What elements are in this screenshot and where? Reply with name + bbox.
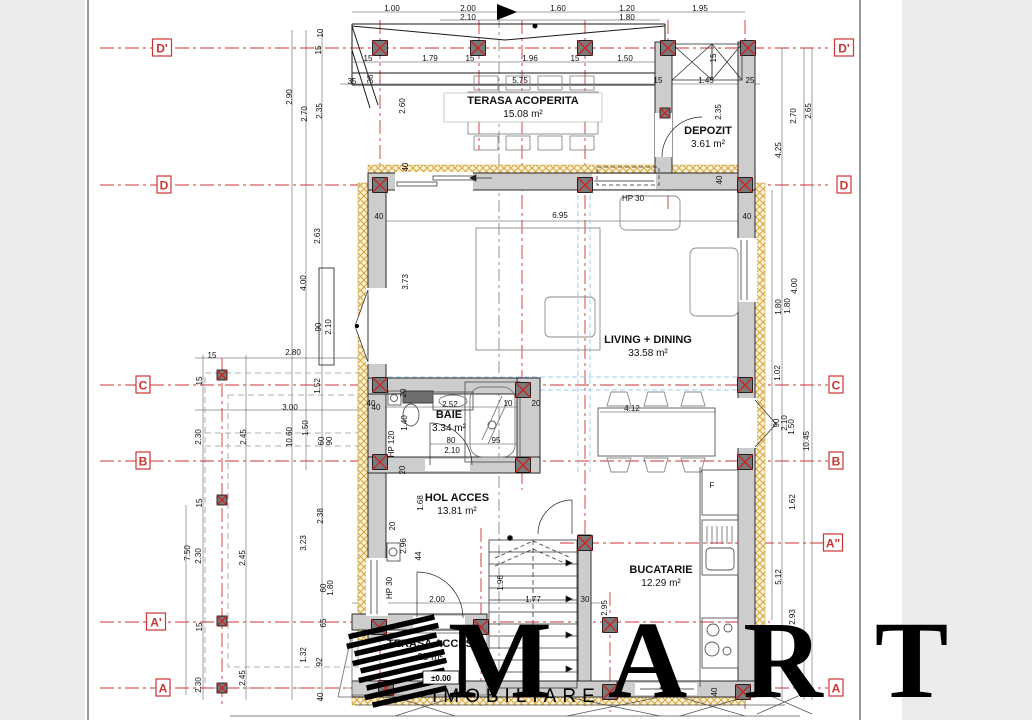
grid-label-B: B xyxy=(829,452,843,469)
dimension-label: 2.35 xyxy=(714,104,723,120)
dimension-label: 2.10 xyxy=(324,319,333,335)
dimension-label: 1.20 xyxy=(619,4,635,13)
column-marker xyxy=(578,536,593,551)
column-marker xyxy=(660,108,670,118)
dimension-label: 1.96 xyxy=(496,575,505,591)
grid-letter: D' xyxy=(838,42,850,56)
dimension-label: 2.52 xyxy=(442,400,458,409)
floor-plan-drawing: 1.002.002.101.601.201.801.95151.79151.96… xyxy=(0,0,1032,720)
dimension-label: 2.60 xyxy=(398,98,407,114)
room-name: DEPOZIT xyxy=(684,125,732,137)
dimension-label: 40 xyxy=(367,399,376,408)
dimension-label: 2.10 xyxy=(444,446,460,455)
dimension-label: F xyxy=(710,481,715,490)
dimension-label: 2.63 xyxy=(313,228,322,244)
dimension-label: 4.00 xyxy=(790,278,799,294)
dimension-label: 1.80 xyxy=(326,580,335,596)
room-area: 3.34 m² xyxy=(432,423,467,434)
level-marker-value: ±0.00 xyxy=(431,674,452,683)
column-marker xyxy=(516,383,531,398)
dimension-label: 2.10 xyxy=(460,13,476,22)
dimension-label: HP 120 xyxy=(387,430,396,457)
dimension-label: 40 xyxy=(375,212,384,221)
dimension-label: HP 30 xyxy=(385,576,394,599)
dimension-label: 20 xyxy=(532,399,541,408)
dimension-label: 15 xyxy=(654,76,663,85)
dimension-label: 15 xyxy=(208,351,217,360)
column-marker xyxy=(217,683,227,693)
watermark-subtitle: IMOBILIARE xyxy=(432,686,601,707)
grid-label-C: C xyxy=(829,376,843,393)
dimension-label: 2.30 xyxy=(194,429,203,445)
dimension-label: 2.70 xyxy=(300,106,309,122)
dimension-label: 1.00 xyxy=(384,4,400,13)
column-marker xyxy=(516,458,531,473)
level-marker: ±0.00 xyxy=(423,671,459,684)
dimension-label: 92 xyxy=(315,657,324,666)
dimension-label: 5.12 xyxy=(774,569,783,585)
grid-label-D': D' xyxy=(153,39,172,56)
room-name: TERASA ACOPERITA xyxy=(467,95,578,107)
dimension-label: 10.45 xyxy=(802,430,811,451)
column-marker xyxy=(661,41,676,56)
column-marker xyxy=(738,378,753,393)
dimension-label: 10.60 xyxy=(285,426,294,447)
dimension-label: 44 xyxy=(414,551,423,560)
dimension-label: 40 xyxy=(743,212,752,221)
floor-plan-page: 1.002.002.101.601.201.801.95151.79151.96… xyxy=(0,0,1032,720)
dimension-label: 1.52 xyxy=(313,378,322,394)
dimension-label: 1.50 xyxy=(787,419,796,435)
dimension-label: 40 xyxy=(715,175,724,184)
dimension-label: 65 xyxy=(319,618,328,627)
column-marker xyxy=(373,41,388,56)
dimension-label: 3.23 xyxy=(299,535,308,551)
grid-letter: C xyxy=(832,379,841,393)
column-marker xyxy=(217,616,227,626)
dimension-label: 3.00 xyxy=(282,403,298,412)
grid-label-C: C xyxy=(136,376,150,393)
dimension-label: 35 xyxy=(348,77,357,86)
grid-letter: D xyxy=(160,179,169,193)
column-marker xyxy=(217,370,227,380)
dimension-label: 1.02 xyxy=(773,365,782,381)
column-marker xyxy=(741,41,756,56)
dimension-label: 1.80 xyxy=(783,298,792,314)
dimension-label: 2.38 xyxy=(316,508,325,524)
column-marker xyxy=(373,455,388,470)
dimension-label: 1.45 xyxy=(698,76,714,85)
dimension-label: 2.00 xyxy=(429,595,445,604)
dimension-label: 36 xyxy=(366,74,375,83)
dimension-label: 2.35 xyxy=(315,103,324,119)
dimension-label: 20 xyxy=(398,465,407,474)
dimension-label: 80 xyxy=(447,436,456,445)
dimension-label: 25 xyxy=(746,76,755,85)
column-marker xyxy=(217,495,227,505)
grid-label-B: B xyxy=(136,452,150,469)
grid-label-A: A xyxy=(156,679,170,696)
dimension-label: 1.50 xyxy=(301,420,310,436)
column-marker xyxy=(373,178,388,193)
grid-letter: C xyxy=(139,379,148,393)
column-marker xyxy=(738,178,753,193)
dimension-label: 40 xyxy=(316,692,325,701)
dimension-label: 1.79 xyxy=(422,54,438,63)
dimension-label: 15 xyxy=(571,54,580,63)
dimension-label: 15 xyxy=(466,54,475,63)
grid-letter: A xyxy=(159,682,168,696)
dimension-label: 2.70 xyxy=(789,108,798,124)
dimension-label: 15 xyxy=(195,376,204,385)
dimension-label: 40 xyxy=(401,162,410,171)
dimension-label: 95 xyxy=(492,436,501,445)
dimension-label: 1.80 xyxy=(774,299,783,315)
dimension-label: 15 xyxy=(195,498,204,507)
grid-letter: B xyxy=(139,455,148,469)
dimension-label: 2.65 xyxy=(804,103,813,119)
dimension-label: 2.00 xyxy=(460,4,476,13)
dimension-label: 90 xyxy=(325,436,334,445)
dimension-label: 1.80 xyxy=(619,13,635,22)
room-name: BUCATARIE xyxy=(629,564,692,576)
dimension-label: 20 xyxy=(388,521,397,530)
dimension-label: 5.75 xyxy=(512,76,528,85)
dimension-label: 90 xyxy=(314,322,323,331)
grid-letter: D xyxy=(840,179,849,193)
dimension-label: 2.30 xyxy=(194,677,203,693)
dimension-label: 15 xyxy=(314,45,323,54)
room-area: 15.08 m² xyxy=(503,109,543,120)
grid-letter: D' xyxy=(156,42,168,56)
column-marker xyxy=(373,378,388,393)
grid-label-A': A' xyxy=(147,613,166,630)
room-name: BAIE xyxy=(436,409,462,421)
dimension-label: 1.50 xyxy=(617,54,633,63)
room-name: HOL ACCES xyxy=(425,492,489,504)
dimension-label: HP 30 xyxy=(622,194,645,203)
dimension-label: 1.96 xyxy=(522,54,538,63)
dimension-label: 1.95 xyxy=(692,4,708,13)
grid-label-D': D' xyxy=(835,39,854,56)
dimension-label: 4.25 xyxy=(774,142,783,158)
dimension-label: 1.68 xyxy=(416,495,425,511)
column-marker xyxy=(578,178,593,193)
column-marker xyxy=(578,41,593,56)
dimension-label: 15 xyxy=(709,53,718,62)
column-marker xyxy=(738,455,753,470)
dimension-label: 2.96 xyxy=(399,538,408,554)
grid-letter: A" xyxy=(826,537,840,551)
dimension-label: 1.40 xyxy=(400,415,409,431)
grid-letter: B xyxy=(832,455,841,469)
room-area: 12.29 m² xyxy=(641,578,681,589)
dimension-label: 2.45 xyxy=(238,670,247,686)
dimension-label: 4.00 xyxy=(299,275,308,291)
dimension-label: 2.30 xyxy=(194,548,203,564)
dimension-label: 15 xyxy=(364,54,373,63)
dimension-label: 10 xyxy=(504,399,513,408)
grid-label-D: D xyxy=(837,176,851,193)
dimension-label: 2.45 xyxy=(238,550,247,566)
room-area: 33.58 m² xyxy=(628,348,668,359)
grid-label-A": A" xyxy=(824,534,843,551)
dimension-label: 15 xyxy=(195,622,204,631)
dimension-label: 6.95 xyxy=(552,211,568,220)
room-area: 3.61 m² xyxy=(691,139,726,150)
room-area: 13.81 m² xyxy=(437,506,477,517)
room-name: LIVING + DINING xyxy=(604,334,692,346)
dimension-label: 2.90 xyxy=(285,89,294,105)
dimension-label: 4.12 xyxy=(624,404,640,413)
dimension-label: 10 xyxy=(316,28,325,37)
dimension-label: 20 xyxy=(399,388,408,397)
dimension-label: 1.60 xyxy=(550,4,566,13)
grid-label-D: D xyxy=(157,176,171,193)
dimension-label: 2.45 xyxy=(239,429,248,445)
dimension-label: 1.62 xyxy=(788,494,797,510)
grid-letter: A' xyxy=(150,616,162,630)
dimension-label: 2.80 xyxy=(285,348,301,357)
dimension-label: 7.50 xyxy=(183,545,192,561)
dimension-label: 3.73 xyxy=(401,274,410,290)
dimension-label: 1.32 xyxy=(299,647,308,663)
